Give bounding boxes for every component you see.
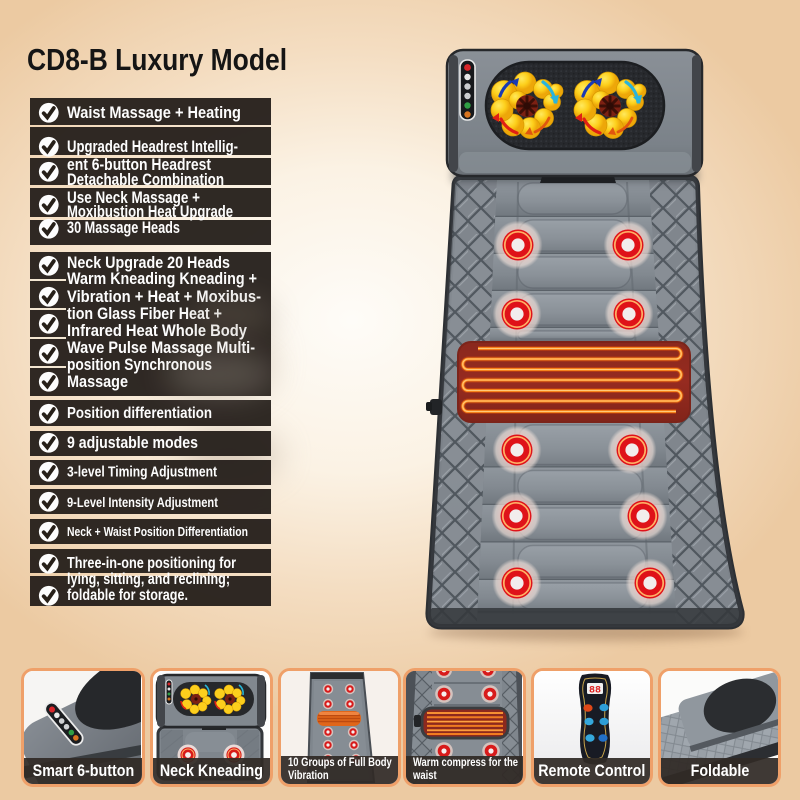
svg-text:88: 88 [589, 686, 601, 697]
